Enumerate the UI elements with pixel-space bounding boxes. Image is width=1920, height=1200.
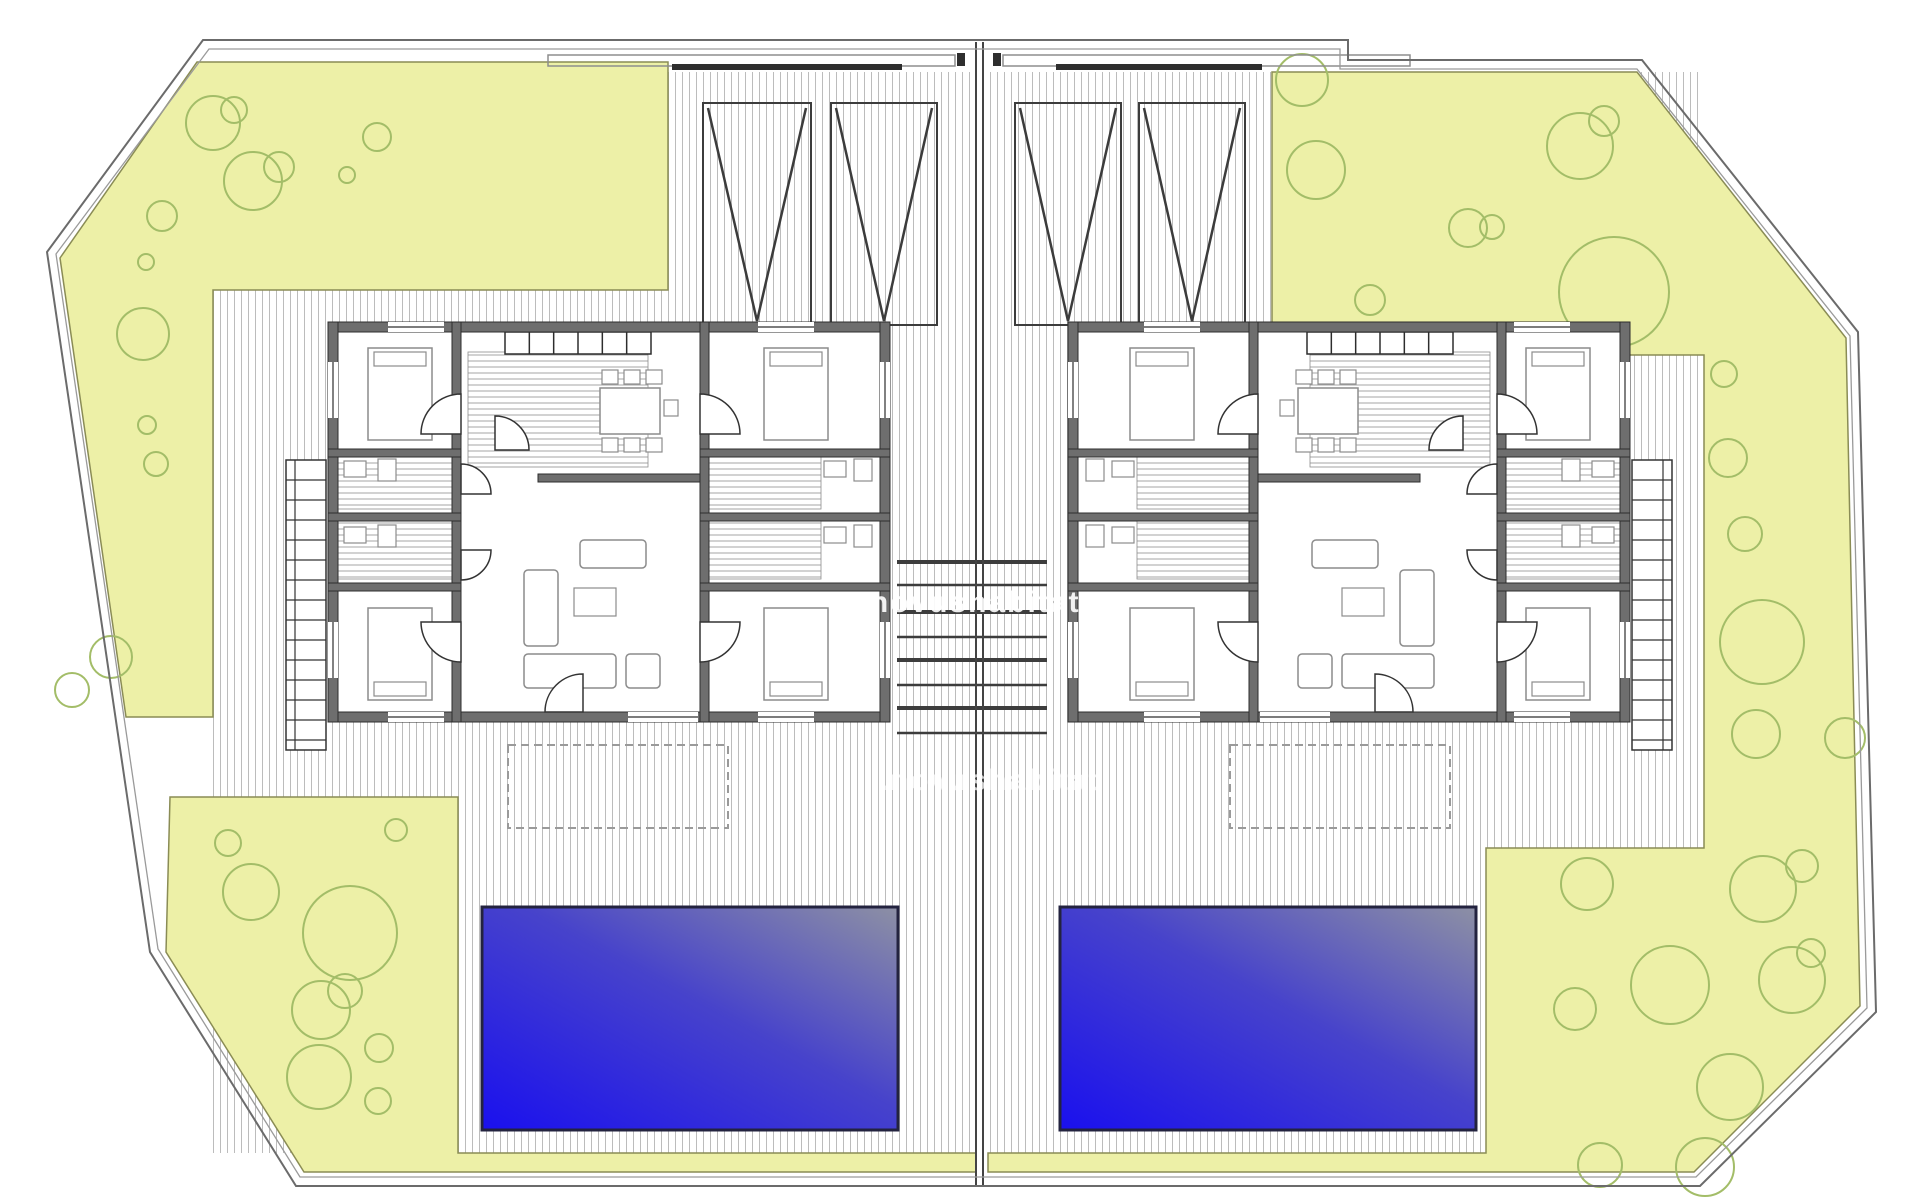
dining-chair <box>664 400 678 416</box>
dining-chair <box>624 438 640 452</box>
bathroom-floor-hatch <box>709 521 821 579</box>
bathroom-fixture <box>1112 527 1134 543</box>
sofa <box>1312 540 1378 568</box>
bathroom-fixture <box>1562 459 1580 481</box>
bed-pillow <box>374 352 426 366</box>
wall <box>700 513 890 521</box>
sofa <box>580 540 646 568</box>
dining-chair <box>602 370 618 384</box>
sofa <box>524 570 558 646</box>
dining-chair <box>1318 370 1334 384</box>
wall <box>1497 583 1630 591</box>
dining-chair <box>1296 370 1312 384</box>
wall <box>328 513 461 521</box>
coffee-table <box>1342 588 1384 616</box>
sofa <box>626 654 660 688</box>
wall <box>538 474 700 482</box>
dining-chair <box>646 438 662 452</box>
bathroom-fixture <box>824 461 846 477</box>
wall <box>328 583 461 591</box>
bathroom-fixture <box>378 525 396 547</box>
dining-chair <box>602 438 618 452</box>
bed-pillow <box>1136 352 1188 366</box>
wall <box>1497 449 1630 457</box>
wall <box>1068 513 1258 521</box>
dining-chair <box>1318 438 1334 452</box>
swimming-pool <box>482 907 898 1130</box>
swimming-pool <box>1060 907 1476 1130</box>
dining-chair <box>646 370 662 384</box>
dining-chair <box>1340 438 1356 452</box>
bathroom-fixture <box>378 459 396 481</box>
bathroom-fixture <box>1592 527 1614 543</box>
exterior-staircase <box>1632 460 1672 750</box>
street-fence-wall <box>672 64 902 70</box>
wall <box>1497 513 1630 521</box>
dining-chair <box>624 370 640 384</box>
house-unit-left <box>328 322 890 722</box>
wall <box>1068 449 1258 457</box>
bed-pillow <box>770 352 822 366</box>
bathroom-floor-hatch <box>1137 521 1249 579</box>
fence-post <box>957 53 965 66</box>
bed-pillow <box>770 682 822 696</box>
dining-chair <box>1340 370 1356 384</box>
bed-pillow <box>1532 682 1584 696</box>
watermark-text: .novushabitat <box>859 586 1080 619</box>
bathroom-fixture <box>1592 461 1614 477</box>
exterior-staircase <box>286 460 326 750</box>
street-fence-wall <box>1056 64 1262 70</box>
bathroom-fixture <box>854 525 872 547</box>
fence-post <box>993 53 1001 66</box>
wall <box>1068 583 1258 591</box>
bathroom-fixture <box>824 527 846 543</box>
sofa <box>1400 570 1434 646</box>
wall <box>700 449 890 457</box>
bathroom-fixture <box>344 461 366 477</box>
wall <box>1258 474 1420 482</box>
bathroom-fixture <box>854 459 872 481</box>
watermark-text-faint: .novushabitat <box>879 764 1100 797</box>
site-plan: .novushabitat .novushabitat <box>0 0 1920 1200</box>
bed-pillow <box>1136 682 1188 696</box>
dining-chair <box>1296 438 1312 452</box>
bathroom-floor-hatch <box>709 457 821 509</box>
bathroom-fixture <box>344 527 366 543</box>
house-unit-right <box>1068 322 1630 722</box>
dining-table <box>1298 388 1358 434</box>
bathroom-fixture <box>1086 459 1104 481</box>
dining-chair <box>1280 400 1294 416</box>
bed-pillow <box>374 682 426 696</box>
wall <box>328 449 461 457</box>
coffee-table <box>574 588 616 616</box>
sofa <box>1298 654 1332 688</box>
bed-pillow <box>1532 352 1584 366</box>
bathroom-fixture <box>1562 525 1580 547</box>
bathroom-fixture <box>1086 525 1104 547</box>
bathroom-fixture <box>1112 461 1134 477</box>
dining-table <box>600 388 660 434</box>
bathroom-floor-hatch <box>1137 457 1249 509</box>
